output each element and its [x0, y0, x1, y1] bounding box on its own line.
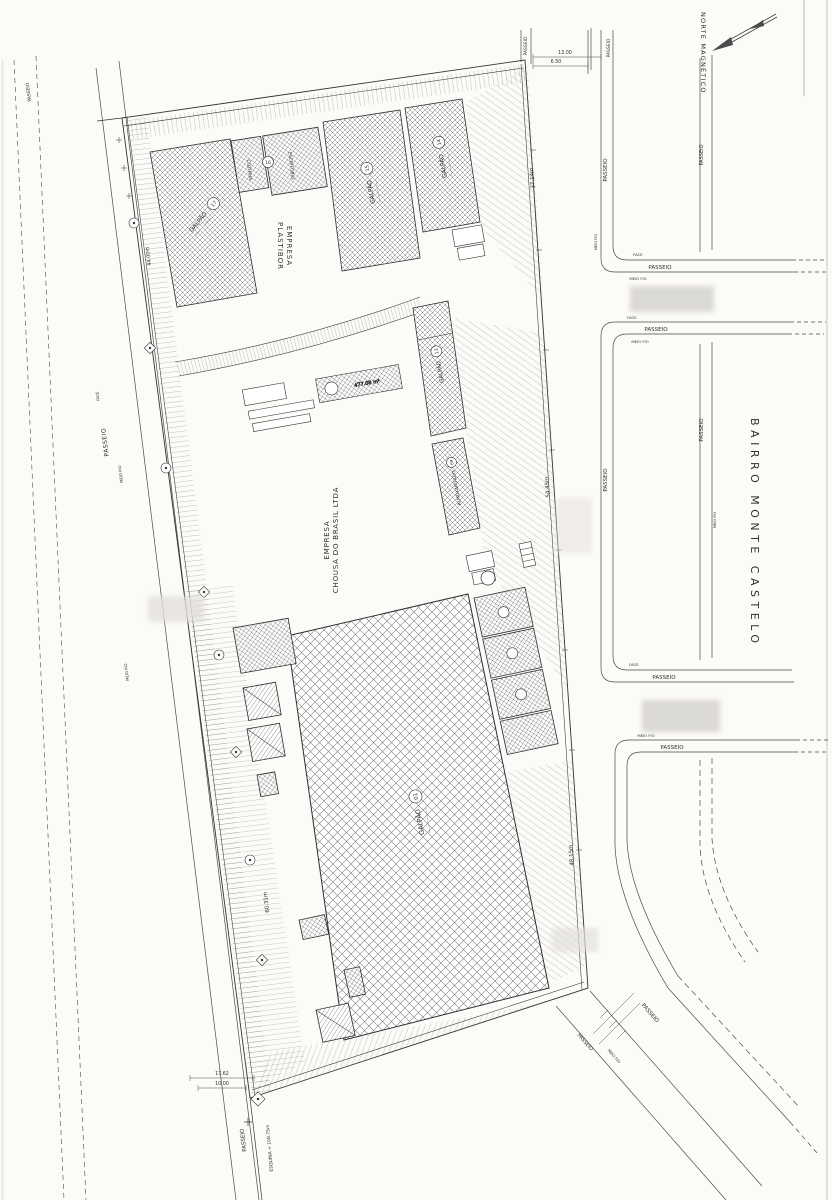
company-plastibor: EMPRESA PLASTIBOR	[276, 222, 293, 270]
meiofio-left2: MEIO FIO	[123, 663, 130, 681]
passeio-corner-top: PASSEIO	[523, 36, 529, 55]
west-structure-1	[233, 618, 296, 673]
meiofio-rv2: MEIO FIO	[713, 512, 717, 529]
small-structures-below-14	[452, 225, 487, 261]
plan-svg: 477.08 m²	[0, 0, 832, 1200]
west-structure-4	[257, 772, 279, 797]
dim-bottom-a: 17.62	[215, 1071, 229, 1077]
passeio-h2: PASSEIO	[644, 327, 668, 333]
dim-bottom-b: 10.00	[215, 1081, 229, 1087]
svg-text:15: 15	[364, 165, 371, 172]
west-structure-2	[243, 682, 281, 720]
meiofio-br: MEIO FIO	[607, 1048, 622, 1064]
redacted-area-se	[552, 928, 598, 952]
redacted-street-name-2	[642, 700, 720, 732]
face-r1: FACE	[633, 252, 643, 257]
north-label: NORTE MAGNÉTICO	[699, 12, 708, 94]
svg-text:EMPRESA: EMPRESA	[285, 226, 293, 266]
svg-text:14: 14	[436, 139, 443, 146]
svg-text:01: 01	[413, 792, 420, 800]
face-r2: FACE	[627, 315, 637, 320]
passeio-h3: PASSEIO	[652, 675, 676, 681]
svg-text:EMPRESA: EMPRESA	[323, 521, 331, 560]
face-left: FACE	[94, 391, 100, 402]
redacted-area-west	[148, 596, 204, 622]
passeio-right-v3: PASSEIO	[699, 144, 705, 165]
svg-text:PLASTIBOR: PLASTIBOR	[276, 222, 284, 270]
bottom-right-street	[556, 976, 818, 1200]
redacted-street-name-1	[630, 286, 714, 312]
north-arrow: NORTE MAGNÉTICO	[699, 12, 777, 94]
dim-street-top-a: 13.00	[558, 50, 572, 56]
passeio-h1: PASSEIO	[648, 265, 672, 271]
dim-street-top-b: 6.50	[551, 59, 562, 65]
tank-circle	[481, 571, 495, 585]
passeio-left: PASSEIO	[100, 427, 110, 456]
north-arrow-mid	[750, 20, 764, 29]
meiofio-rv: MEIO FIO	[594, 234, 598, 251]
svg-text:CHOUSA DO BRASIL LTDA: CHOUSA DO BRASIL LTDA	[332, 487, 340, 593]
face-r3: FACE	[629, 662, 639, 667]
north-arrow-head	[712, 37, 733, 51]
west-structure-7	[316, 1003, 355, 1042]
internal-road	[175, 297, 424, 376]
company-chousa: EMPRESA CHOUSA DO BRASIL LTDA	[323, 487, 340, 593]
site-plan-scan: 477.08 m²	[0, 0, 832, 1200]
district-label: BAIRRO MONTE CASTELO	[748, 418, 761, 648]
dim-bottom-corner: ESQUINA = 108.75m	[265, 1124, 275, 1171]
passeio-br2: PASSEIO	[576, 1032, 594, 1052]
passeio-br1: PASSEIO	[640, 1003, 660, 1025]
dim-right-upper: 37.14m	[529, 167, 536, 188]
passeio-right-v1: PASSEIO	[603, 158, 609, 182]
passeio-right-v2: PASSEIO	[603, 468, 609, 492]
passeio-right-v4: PASSEIO	[699, 418, 705, 442]
passeio-left-lower: PASSEIO	[240, 1128, 249, 1152]
passeio-farleft: PASSEIO	[25, 82, 33, 102]
meiofio-left: MEIO FIO	[117, 465, 124, 483]
west-structure-5	[299, 915, 329, 940]
passeio-top-right: PASSEIO	[606, 38, 612, 57]
weighbridge-platform: 477.08 m²	[242, 363, 405, 433]
redacted-area-e	[556, 498, 592, 554]
passeio-h4: PASSEIO	[660, 745, 684, 751]
meiofio-r2: MEIO FIO	[631, 339, 648, 344]
label-16: 16	[265, 160, 271, 166]
meiofio-r1: MEIO FIO	[629, 276, 646, 281]
svg-text:13: 13	[434, 348, 441, 355]
meiofio-r3: MEIO FIO	[637, 733, 654, 738]
west-structure-3	[247, 723, 285, 761]
